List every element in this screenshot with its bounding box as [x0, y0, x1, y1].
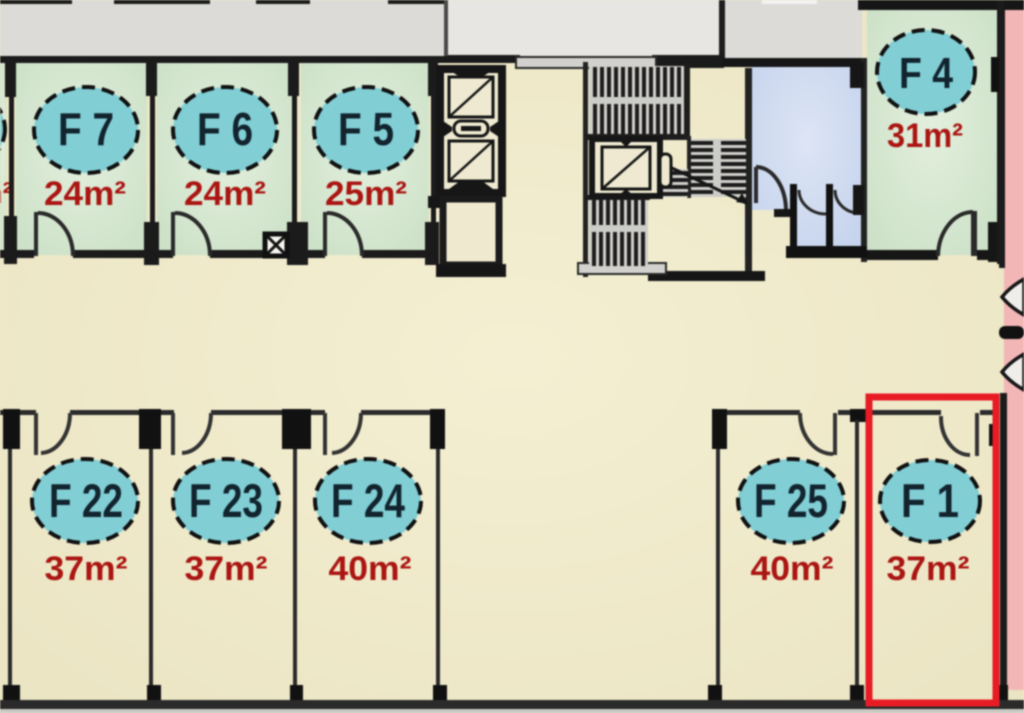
svg-text:24m²: 24m²: [44, 175, 126, 213]
svg-text:37m²: 37m²: [185, 550, 268, 588]
svg-text:F 4: F 4: [899, 49, 953, 98]
svg-text:F 6: F 6: [197, 103, 253, 155]
svg-text:F 1: F 1: [901, 474, 959, 527]
svg-text:37m²: 37m²: [45, 550, 128, 588]
svg-text:24m²: 24m²: [184, 175, 266, 213]
svg-text:37m²: 37m²: [887, 550, 970, 588]
svg-text:F 25: F 25: [754, 474, 828, 527]
svg-text:31m²: 31m²: [887, 117, 963, 155]
svg-text:25m²: 25m²: [325, 175, 407, 213]
svg-text:F 22: F 22: [49, 474, 123, 527]
svg-text:40m²: 40m²: [329, 550, 412, 588]
svg-text:F 5: F 5: [338, 103, 394, 155]
svg-text:F 7: F 7: [58, 103, 114, 155]
svg-text:F 24: F 24: [331, 474, 405, 527]
svg-text:F 23: F 23: [189, 474, 263, 527]
svg-text:40m²: 40m²: [751, 550, 834, 588]
